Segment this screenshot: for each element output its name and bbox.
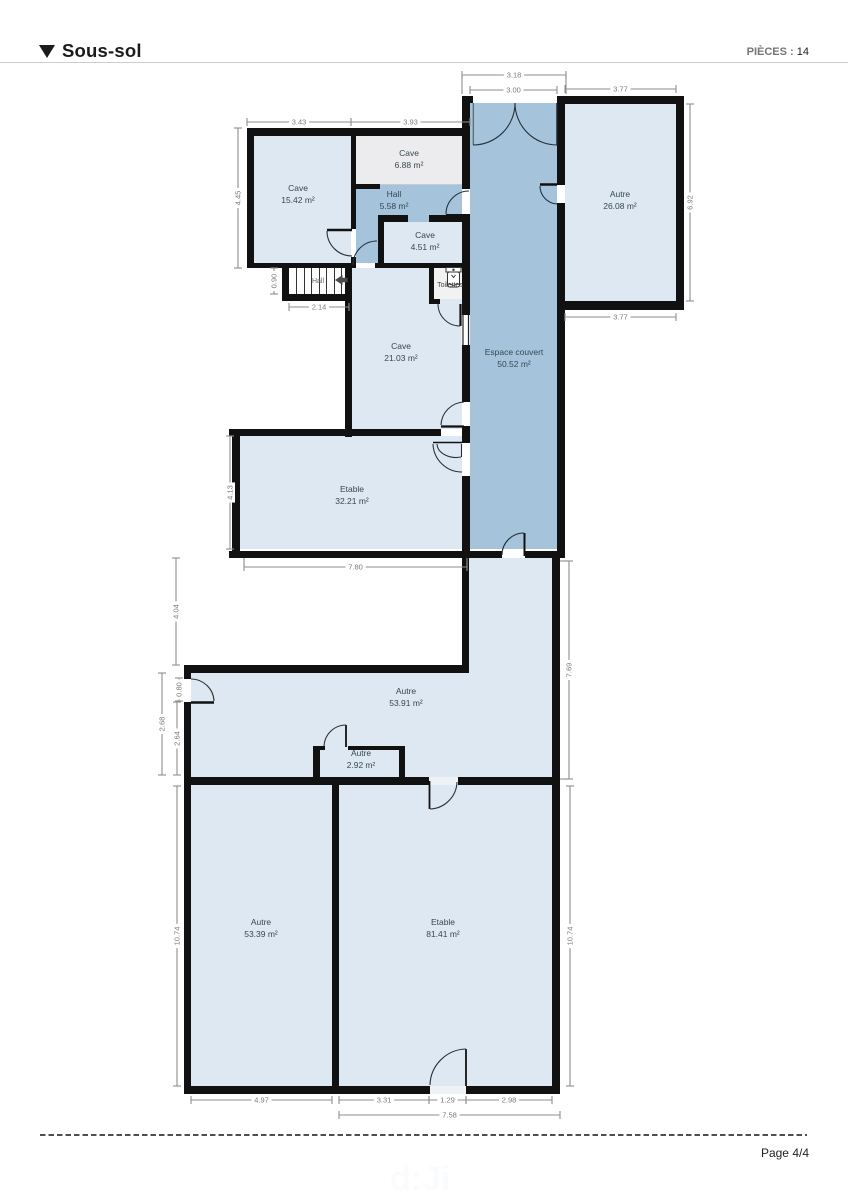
svg-text:4.51 m²: 4.51 m² <box>411 242 440 252</box>
svg-text:53.91 m²: 53.91 m² <box>389 698 423 708</box>
svg-text:Cave: Cave <box>399 148 419 158</box>
svg-text:Autre: Autre <box>251 917 272 927</box>
svg-text:3.77: 3.77 <box>613 85 628 94</box>
svg-text:4.13: 4.13 <box>226 485 235 500</box>
svg-text:Etable: Etable <box>340 484 364 494</box>
svg-text:3.77: 3.77 <box>613 313 628 322</box>
svg-text:4.04: 4.04 <box>172 604 181 619</box>
svg-text:Cave: Cave <box>288 183 308 193</box>
svg-text:Toilettes: Toilettes <box>437 282 463 289</box>
svg-text:Etable: Etable <box>431 917 455 927</box>
svg-text:3.93: 3.93 <box>403 118 418 127</box>
svg-text:Autre: Autre <box>351 748 371 758</box>
svg-text:1.29: 1.29 <box>440 1096 455 1105</box>
svg-text:7.58: 7.58 <box>442 1111 457 1120</box>
svg-text:0.90: 0.90 <box>270 274 279 289</box>
svg-text:2.68: 2.68 <box>158 717 167 732</box>
svg-text:15.42 m²: 15.42 m² <box>281 195 315 205</box>
svg-text:50.52 m²: 50.52 m² <box>497 359 531 369</box>
svg-text:Cave: Cave <box>391 341 411 351</box>
svg-text:81.41 m²: 81.41 m² <box>426 929 460 939</box>
svg-text:Autre: Autre <box>610 189 631 199</box>
svg-text:Cave: Cave <box>415 230 435 240</box>
svg-text:Espace couvert: Espace couvert <box>485 347 544 357</box>
svg-text:10.74: 10.74 <box>566 927 575 946</box>
svg-text:7.69: 7.69 <box>565 663 574 678</box>
svg-text:3.00: 3.00 <box>506 86 521 95</box>
svg-text:4.97: 4.97 <box>254 1096 269 1105</box>
svg-text:2.98: 2.98 <box>502 1096 517 1105</box>
svg-text:2.14: 2.14 <box>312 303 327 312</box>
svg-text:4.45: 4.45 <box>234 191 243 206</box>
svg-text:3.18: 3.18 <box>507 71 522 80</box>
svg-text:2.64: 2.64 <box>173 731 182 746</box>
svg-text:26.08 m²: 26.08 m² <box>603 201 637 211</box>
svg-text:32.21 m²: 32.21 m² <box>335 496 369 506</box>
svg-text:Hall: Hall <box>312 278 325 285</box>
svg-text:5.58 m²: 5.58 m² <box>380 201 409 211</box>
svg-text:6.92: 6.92 <box>686 195 695 210</box>
svg-text:53.39 m²: 53.39 m² <box>244 929 278 939</box>
svg-text:6.88 m²: 6.88 m² <box>395 160 424 170</box>
svg-text:3.31: 3.31 <box>377 1096 392 1105</box>
svg-text:3.43: 3.43 <box>292 118 307 127</box>
svg-text:Hall: Hall <box>387 189 402 199</box>
svg-text:Autre: Autre <box>396 686 417 696</box>
svg-text:21.03 m²: 21.03 m² <box>384 353 418 363</box>
svg-text:0.80: 0.80 <box>175 682 184 697</box>
svg-text:2.92 m²: 2.92 m² <box>347 760 376 770</box>
svg-text:10.74: 10.74 <box>173 927 182 946</box>
svg-text:7.80: 7.80 <box>348 563 363 572</box>
